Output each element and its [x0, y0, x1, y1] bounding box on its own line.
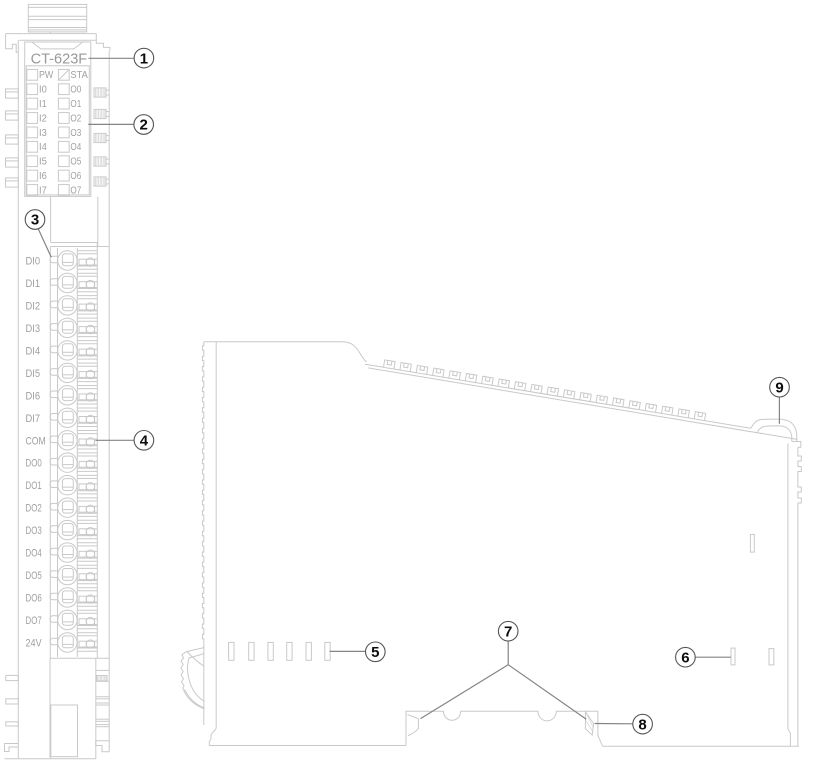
- svg-text:I2: I2: [39, 113, 47, 124]
- svg-text:I6: I6: [39, 171, 47, 182]
- svg-text:3: 3: [31, 212, 39, 229]
- svg-text:4: 4: [140, 433, 149, 450]
- svg-text:DI5: DI5: [26, 368, 41, 380]
- svg-text:DI7: DI7: [26, 413, 41, 425]
- svg-text:O1: O1: [70, 99, 81, 110]
- svg-text:DI1: DI1: [26, 278, 41, 290]
- svg-text:I0: I0: [39, 85, 47, 96]
- svg-text:O7: O7: [70, 185, 81, 196]
- svg-text:7: 7: [504, 623, 512, 640]
- svg-text:DO1: DO1: [26, 480, 42, 492]
- svg-text:DO0: DO0: [26, 458, 42, 470]
- svg-text:8: 8: [638, 716, 646, 733]
- svg-text:I3: I3: [39, 128, 47, 139]
- svg-text:1: 1: [140, 50, 148, 67]
- svg-text:DI0: DI0: [26, 256, 41, 268]
- svg-text:DO6: DO6: [26, 593, 42, 605]
- svg-text:O6: O6: [70, 171, 81, 182]
- svg-text:9: 9: [775, 379, 783, 396]
- svg-text:I4: I4: [39, 142, 47, 153]
- svg-text:O3: O3: [70, 128, 81, 139]
- svg-text:O0: O0: [70, 85, 81, 96]
- svg-text:O4: O4: [70, 142, 81, 153]
- svg-text:DI3: DI3: [26, 323, 41, 335]
- svg-text:I1: I1: [39, 99, 47, 110]
- svg-text:O2: O2: [70, 113, 81, 124]
- svg-text:6: 6: [681, 649, 689, 666]
- svg-text:COM: COM: [26, 435, 46, 447]
- svg-text:2: 2: [140, 117, 148, 134]
- svg-text:5: 5: [371, 644, 379, 661]
- svg-text:DI2: DI2: [26, 300, 41, 312]
- svg-text:DO5: DO5: [26, 570, 42, 582]
- svg-text:STA: STA: [70, 70, 88, 81]
- svg-text:DO7: DO7: [26, 615, 42, 627]
- svg-text:24V: 24V: [26, 638, 43, 650]
- svg-text:DO3: DO3: [26, 525, 42, 537]
- svg-text:I5: I5: [39, 157, 47, 168]
- svg-text:PW: PW: [39, 70, 54, 81]
- svg-text:DO4: DO4: [26, 548, 42, 560]
- svg-text:DI6: DI6: [26, 390, 41, 402]
- svg-text:CT-623F: CT-623F: [31, 52, 88, 68]
- svg-text:DI4: DI4: [26, 345, 41, 357]
- svg-text:DO2: DO2: [26, 503, 42, 515]
- svg-text:O5: O5: [70, 157, 81, 168]
- svg-text:I7: I7: [39, 185, 47, 196]
